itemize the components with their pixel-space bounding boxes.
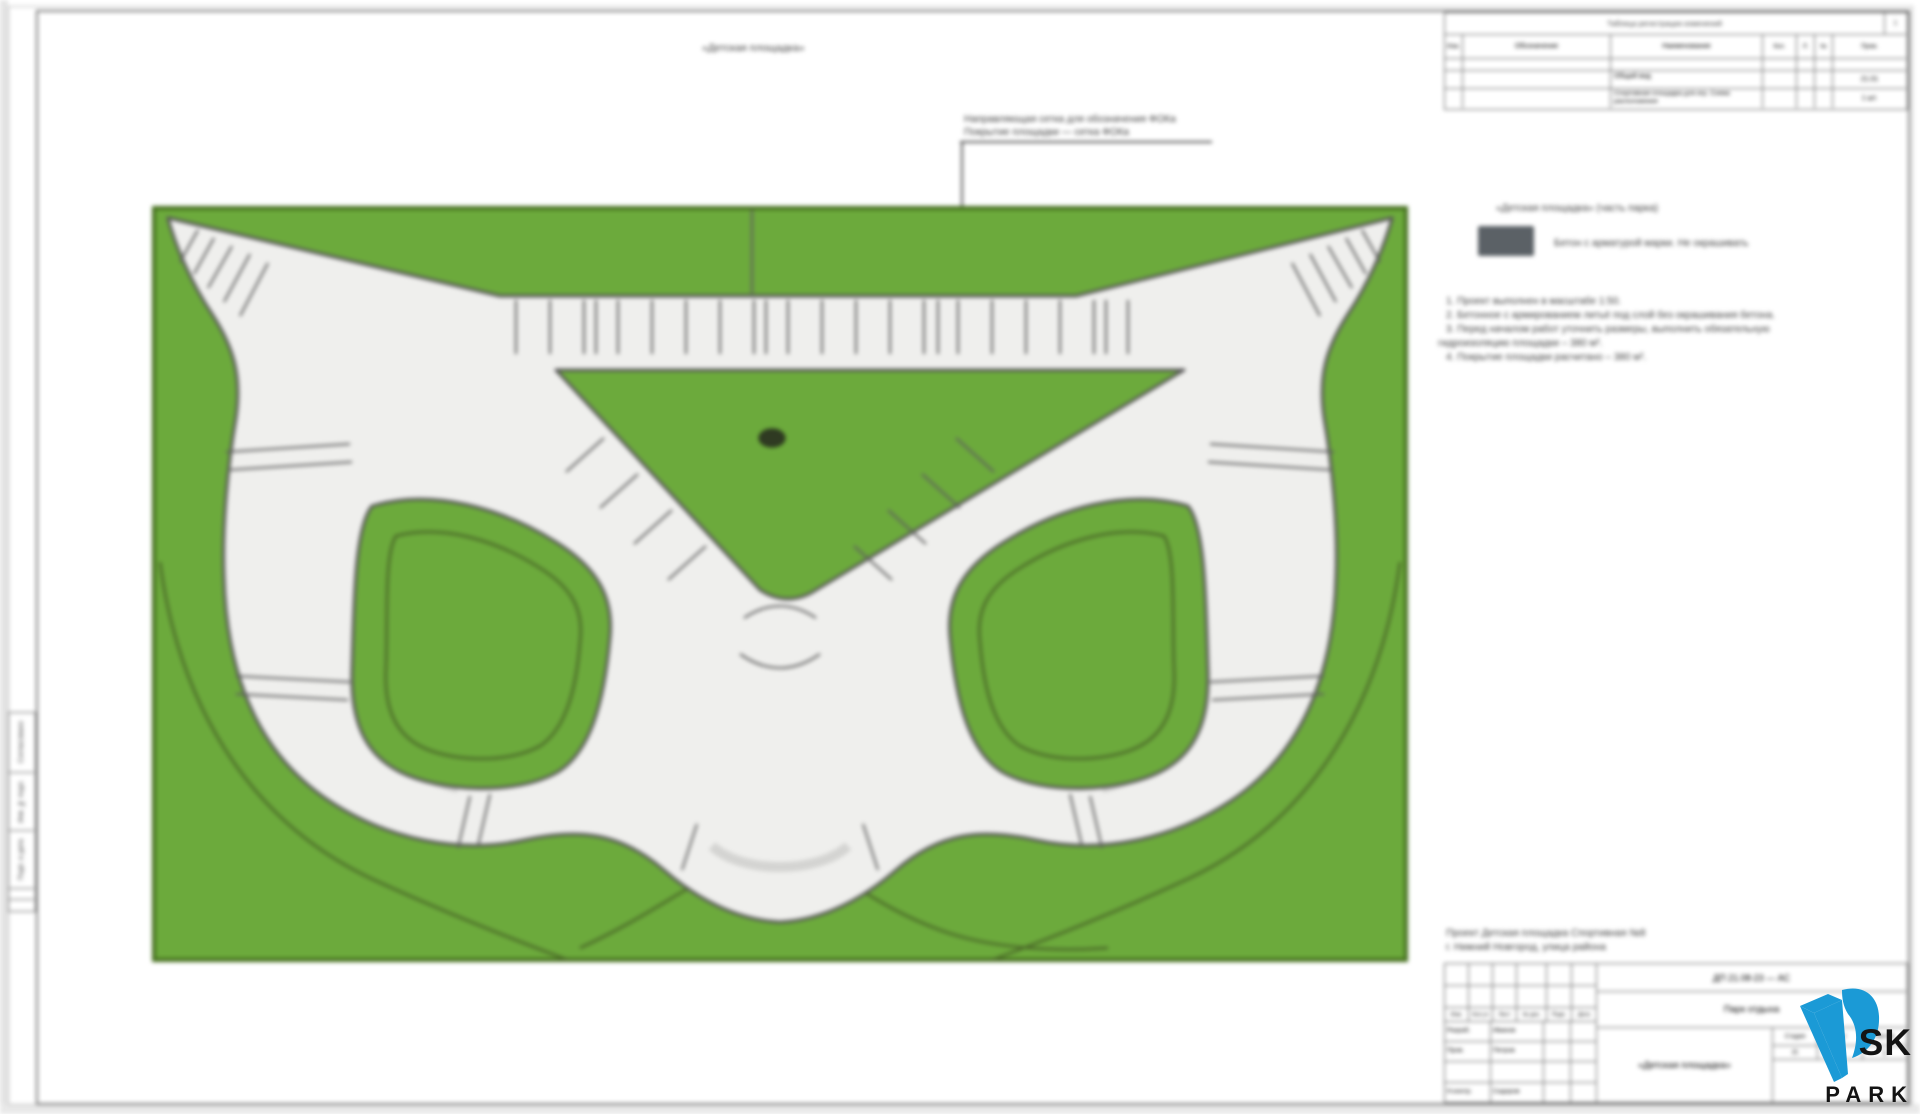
- revision-table-corner: 1: [1885, 13, 1906, 35]
- stamp-mini-h: Лист: [1493, 1008, 1517, 1022]
- stamp-drawing-title: «Детская площадка»: [1597, 1028, 1773, 1102]
- stamp-name: Петров: [1491, 1042, 1544, 1062]
- plan-marker: [759, 429, 785, 447]
- stamp-mini-h: Подп.: [1547, 1008, 1572, 1022]
- stamp-mini-h: Изм.: [1445, 1008, 1469, 1022]
- rev-col-6: Прим.: [1833, 35, 1906, 59]
- stamp-role: Разраб.: [1445, 1022, 1491, 1042]
- rev-col-4: Л.: [1797, 35, 1815, 59]
- rev-col-2: Наименование: [1611, 35, 1763, 59]
- side-stamp-label: Инв. № подл.: [18, 780, 25, 823]
- rev-col-0: Изм.: [1445, 35, 1463, 59]
- above-stamp-line-2: г. Нижний Новгород, улица района: [1446, 942, 1606, 953]
- drawing-sheet: «Детская площадка» Направляющая сетка дл…: [0, 0, 1920, 1114]
- note-line: 3. Перед началом работ уточнить размеры,…: [1446, 324, 1770, 335]
- side-stamp: Согласовано Инв. № подл. Подп. и дата: [8, 712, 36, 912]
- side-stamp-cell: Инв. № подл.: [9, 773, 34, 831]
- legend-swatch: [1478, 226, 1534, 256]
- rev-col-1: Обозначение: [1463, 35, 1611, 59]
- note-line: 1. Проект выполнен в масштабе 1:50.: [1446, 296, 1621, 307]
- side-stamp-label: Согласовано: [18, 721, 25, 763]
- legend-swatch-label: Бетон с арматурой марки. Не окрашивать: [1554, 238, 1748, 249]
- stamp-mini-h: № док.: [1517, 1008, 1547, 1022]
- sk-park-logo-sk: SK: [1859, 1022, 1912, 1064]
- revision-table: Таблица регистрации изменений 1 Изм. Обо…: [1444, 12, 1908, 110]
- rev-row-1-name: Общий вид: [1611, 71, 1763, 89]
- side-stamp-label: Подп. и дата: [18, 839, 25, 880]
- stamp-mini-h: Дата: [1572, 1008, 1597, 1022]
- page-edge-left: [0, 0, 8, 1114]
- annotation-line-1: Направляющая сетка для обозначения ФОКа: [964, 114, 1176, 125]
- rev-row-2-name: Спортивная площадка для игр. Схема распо…: [1611, 89, 1763, 108]
- blurred-drawing-content: «Детская площадка» Направляющая сетка дл…: [0, 0, 1920, 1114]
- pump-track-plan: [152, 206, 1408, 962]
- sheet-top-title: «Детская площадка»: [702, 42, 805, 54]
- rev-col-5: №: [1815, 35, 1833, 59]
- sk-park-logo: SK PARK: [1792, 984, 1914, 1110]
- note-line: 4. Покрытие площадки расчитано – 380 м².: [1446, 352, 1646, 363]
- stamp-role: Пров.: [1445, 1042, 1491, 1062]
- note-line: гидроизоляцию площадки – 380 м².: [1438, 338, 1603, 349]
- side-stamp-cell: Подп. и дата: [9, 831, 34, 889]
- sk-park-logo-park: PARK: [1825, 1082, 1914, 1108]
- rev-col-3: Кол.: [1763, 35, 1797, 59]
- stamp-mini-h: Кол.уч: [1469, 1008, 1493, 1022]
- stamp-name: Сидоров: [1491, 1083, 1544, 1102]
- above-stamp-line-1: Проект Детская площадка Спортивная №8: [1446, 928, 1646, 939]
- legend-title: «Детская площадка» (часть парка): [1496, 203, 1658, 214]
- rev-row-1-note: 21.01: [1833, 71, 1906, 89]
- stamp-name: Иванов: [1491, 1022, 1544, 1042]
- stamp-role: Н.контр.: [1445, 1083, 1491, 1102]
- page-edge-bottom: [0, 1104, 1920, 1114]
- side-stamp-cell: Согласовано: [9, 713, 34, 773]
- annotation-line-2: Покрытие площадки — сетка ФОКа: [964, 127, 1129, 138]
- note-line: 2. Бетонное с армированием литьё под сло…: [1446, 310, 1775, 321]
- rev-row-2-note: 1 шт.: [1833, 89, 1906, 108]
- revision-table-title: Таблица регистрации изменений: [1445, 13, 1885, 35]
- annotation-underline: [960, 141, 1212, 143]
